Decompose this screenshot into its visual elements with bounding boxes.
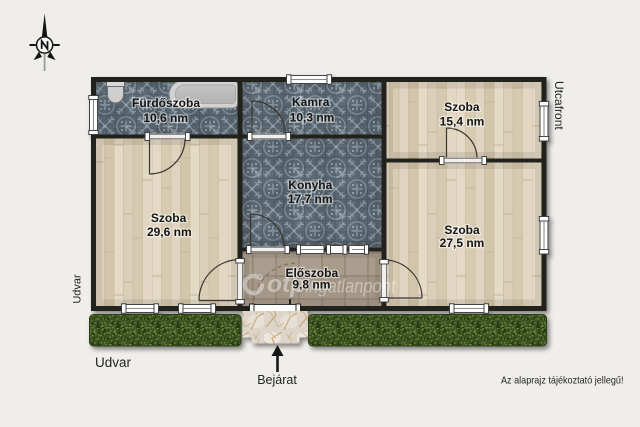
svg-text:10,6 nm: 10,6 nm (143, 111, 188, 125)
svg-text:9,8 nm: 9,8 nm (292, 278, 330, 292)
svg-text:17,7 nm: 17,7 nm (288, 192, 333, 206)
svg-text:Udvar: Udvar (95, 355, 132, 370)
svg-text:Szoba: Szoba (444, 223, 480, 237)
svg-text:Konyha: Konyha (288, 178, 332, 192)
svg-text:Az alaprajz tájékoztató jelleg: Az alaprajz tájékoztató jellegű! (501, 375, 624, 387)
svg-text:Fürdőszoba: Fürdőszoba (132, 96, 200, 110)
svg-text:Szoba: Szoba (444, 100, 480, 114)
svg-text:15,4 nm: 15,4 nm (440, 115, 485, 129)
svg-text:Kamra: Kamra (292, 95, 330, 109)
svg-text:Szoba: Szoba (151, 211, 187, 225)
svg-text:Bejárat: Bejárat (257, 373, 297, 387)
svg-text:29,6 nm: 29,6 nm (147, 225, 192, 239)
svg-text:27,5 nm: 27,5 nm (440, 236, 485, 250)
svg-text:Udvar: Udvar (72, 274, 84, 304)
svg-text:10,3 nm: 10,3 nm (290, 111, 335, 125)
svg-text:Utcafront: Utcafront (552, 81, 566, 130)
